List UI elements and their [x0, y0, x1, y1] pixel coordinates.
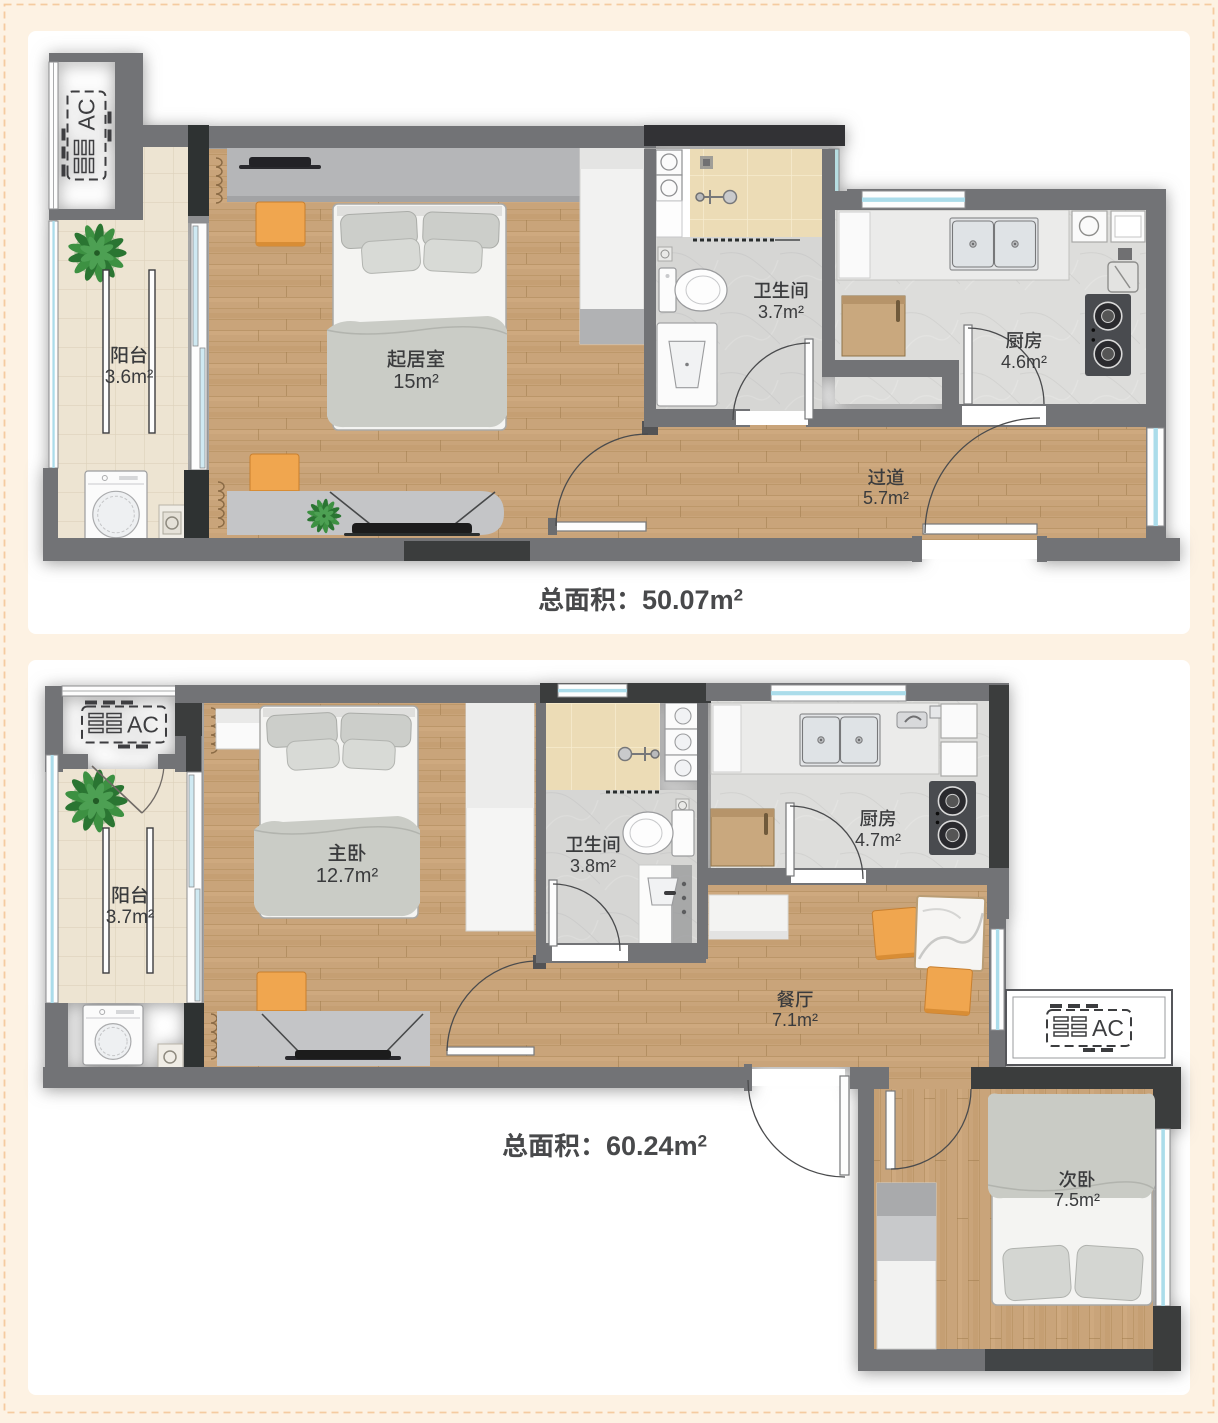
svg-text:3.7m²: 3.7m²	[106, 907, 155, 928]
svg-text:15m²: 15m²	[393, 371, 439, 393]
svg-text:7.5m²: 7.5m²	[1054, 1190, 1100, 1210]
svg-text:3.7m²: 3.7m²	[758, 302, 804, 322]
svg-text:12.7m²: 12.7m²	[316, 865, 379, 887]
svg-text:4.7m²: 4.7m²	[855, 830, 901, 850]
svg-text:50.07m2: 50.07m2	[642, 585, 743, 615]
svg-text:7.1m²: 7.1m²	[772, 1010, 818, 1030]
svg-text:AC: AC	[74, 99, 100, 131]
svg-text:4.6m²: 4.6m²	[1001, 352, 1047, 372]
svg-text:60.24m2: 60.24m2	[606, 1131, 707, 1161]
svg-text:AC: AC	[1092, 1015, 1124, 1041]
svg-text:AC: AC	[127, 712, 159, 738]
svg-text:5.7m²: 5.7m²	[863, 488, 909, 508]
svg-text:3.6m²: 3.6m²	[105, 367, 154, 388]
svg-text:3.8m²: 3.8m²	[570, 856, 616, 876]
